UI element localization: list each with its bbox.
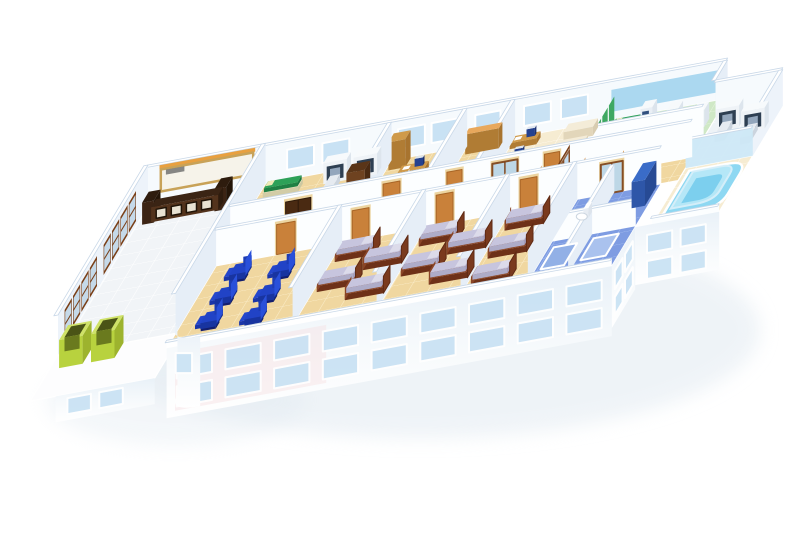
hospital-floor-plan-3d-render bbox=[0, 0, 800, 550]
facade-right-end-window bbox=[647, 256, 672, 279]
facade-right-end-window bbox=[647, 230, 672, 253]
office-desk-monitor bbox=[415, 157, 423, 167]
facade-slab-window bbox=[99, 388, 123, 408]
facade-slab-window bbox=[67, 394, 91, 414]
ward3-door bbox=[520, 177, 537, 210]
console-screen bbox=[171, 205, 181, 216]
toilet-bowl bbox=[576, 213, 587, 220]
ward1-door bbox=[352, 208, 369, 241]
facade-waiting-corner-window bbox=[176, 353, 192, 373]
back-window bbox=[287, 145, 314, 170]
back-window bbox=[524, 101, 551, 126]
back-window bbox=[561, 94, 588, 119]
office-desk-monitor bbox=[527, 128, 535, 138]
ward2-door bbox=[436, 192, 453, 225]
floor-plan-scene bbox=[0, 0, 800, 550]
floor-plan-world bbox=[30, 58, 782, 445]
bath-cabinet bbox=[632, 180, 645, 209]
elevator-inner bbox=[96, 329, 111, 346]
console-screen bbox=[186, 202, 196, 213]
elevator-inner bbox=[65, 335, 80, 352]
waiting-door bbox=[277, 221, 296, 254]
facade-right-end-window bbox=[681, 250, 706, 273]
facade-right-end-window bbox=[681, 224, 706, 247]
console-screen bbox=[202, 199, 212, 210]
console-screen bbox=[156, 207, 166, 218]
